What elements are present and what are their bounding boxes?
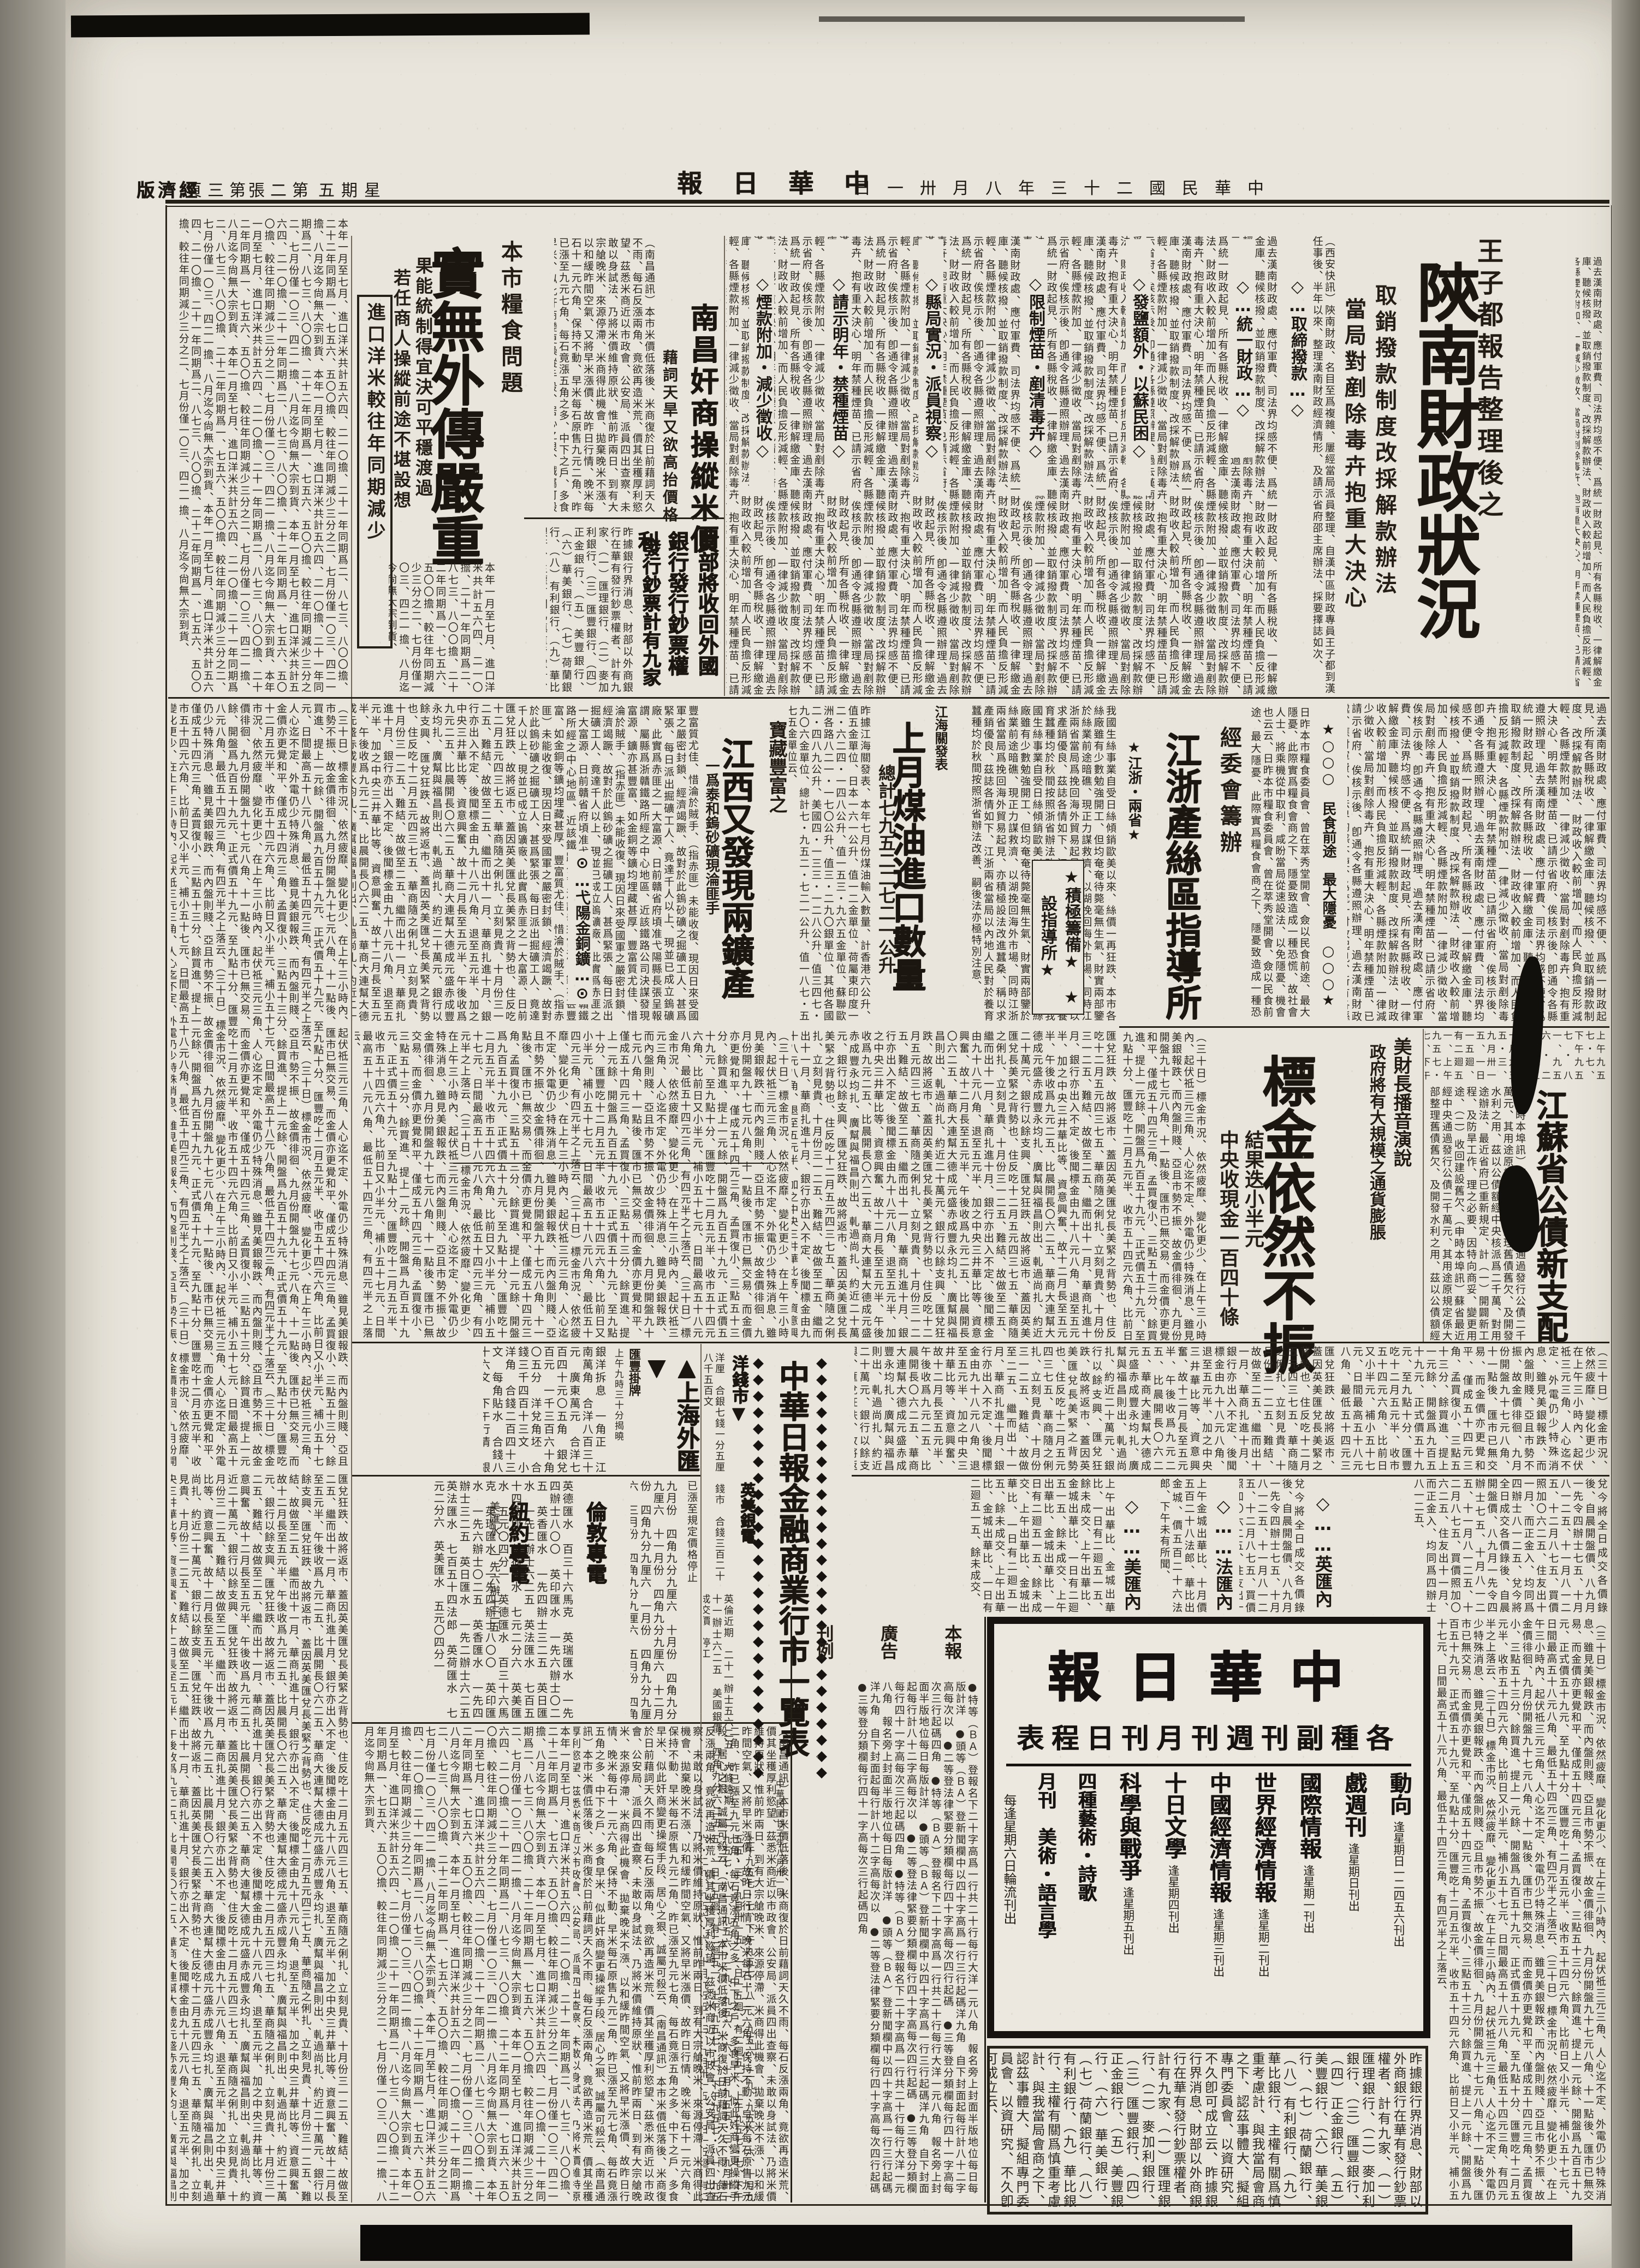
shanghai-fx-header: ▲上海外匯▼ <box>643 1354 703 1496</box>
ad-item-name: 十日文學 <box>1157 1772 1189 1859</box>
minfood-star-head: ★○○○ 民食前途 最大隱憂 ○○○★ <box>1314 707 1339 1023</box>
sterling-inner-intro: 兌今將全日成交各價錄後、自晨開盤價、八九月一先令四辦士七五、十月八一二五、十一月… <box>1340 1478 1608 1614</box>
shaanxi-subhead-diamond: ◇請示明年・禁種煙苗◇ <box>825 239 851 496</box>
shaanxi-subhead-diamond: ◇…統一財政…◇ <box>1229 239 1255 457</box>
left-strip-mid: （三十日）標金市況、依然疲靡、變化更少、在上午三小時內、起伏祗三元三角、人心迄不… <box>171 703 348 1467</box>
table-rule <box>852 1475 1609 1477</box>
header-sheet: 張二第 <box>248 177 314 201</box>
usd-inner-body: 上午出華比、金城出華比、一日有二廻五一五、餘未成交、上午出華比、金城出華比、一日… <box>854 1478 1115 1614</box>
ad-rates-label: 廣告 <box>876 1624 901 1674</box>
header-section-label: 版濟經 <box>136 176 200 202</box>
table-rule <box>352 1475 700 1477</box>
scanner-bar-bottom <box>360 2225 1572 2261</box>
mines-headline: 江西又發現兩鑛產 <box>722 737 759 1032</box>
shanghai-fx-table: 銀洋拆息 一角正 江南萬角 合洋八百三十元 廣東萬元 合洋七百四十元〇五角 銀兌… <box>483 1346 606 1474</box>
ad-item-kexuezhanzheng: 科學與戰爭逢星期五刊出 <box>1113 1772 1144 2028</box>
shaanxi-subhead-diamond: ◇發鹽額外・以蘇民困◇ <box>1126 239 1151 496</box>
silk-kicker: 經委會籌辦 <box>1213 726 1245 879</box>
scanner-line-top <box>819 16 1245 22</box>
silver-dollar-market-rows: 洋厘 合銀七錢一分五厘 錢市 合錢三百二十八千五百文 <box>703 1353 725 1582</box>
ad-item-guoji: 國際情報逢星期一刊出 <box>1293 1772 1324 2028</box>
sterling-inner-header: ◇……英匯內盤……◇ <box>1310 1485 1335 1616</box>
ad-item-dongxiang: 動向逢星期日一二四五六刊出 <box>1383 1772 1415 2028</box>
nanchang-deck: 藉詞天旱又欲高抬價格 <box>658 349 680 535</box>
ad-item-schedule: 逢星期一刊出 <box>1300 1865 1317 1933</box>
shaanxi-lead: （西安快訊）陝南財政、名目至爲複雜、屢經當局派員整理、自漢中區財政專員王子都到漢… <box>1311 236 1335 694</box>
gold-kicker-2: 政府將有大規模之通貨膨脹 <box>1364 1044 1388 1273</box>
ad-item-name: 中國經濟情報 <box>1203 1772 1234 1903</box>
ad-item-schedule: 逢星期二刊出 <box>1255 1908 1271 1977</box>
franc-inner-body: 上午金城出華比、十月價五百二十八法郎、華比出金城、價五百二十六法郎、下午未有所聞… <box>1148 1478 1207 1614</box>
ad-rates-block: 本報 廣告 刊例 ●特等（ＢＡ）登報名下二十字高爲一行共二十行每行大洋一元八角 … <box>791 1617 986 2202</box>
region-d-upper-right-text: （三十日）標金市況、依然疲靡、變化更少、在上午三小時內、起伏祗三元三角、人心迄不… <box>1340 1346 1608 1472</box>
ad-item-name: 科學與戰爭 <box>1113 1772 1144 1881</box>
silk-star-subhead: ★江浙・兩省★ <box>1120 710 1144 873</box>
newspaper-page: 日一卅月八年三十二國民華中 報日華中 五期星 張二第 頁三第 版濟經 王子都報告… <box>64 0 1640 2268</box>
ad-item-name: 世界經濟情報 <box>1247 1772 1279 1903</box>
newspaper-scan: 日一卅月八年三十二國民華中 報日華中 五期星 張二第 頁三第 版濟經 王子都報告… <box>0 0 1640 2268</box>
shaanxi-deck-1: 取銷撥款制度改採解款辦法 <box>1368 284 1400 688</box>
ad-item-schedule: 逢星期三刊出 <box>1210 1908 1227 1977</box>
ad-item-schedule: 逢星期四刊出 <box>1165 1865 1181 1933</box>
supplements-ad-box: 報日華中 表程日刊月刊週刊副種各 動向逢星期日一二四五六刊出 戲週刊逢星期日刊出… <box>987 1617 1430 2038</box>
kerosene-deck: 總計七九五二二七二一公升 <box>874 764 899 1026</box>
usd-inner-header: ◇……美匯內盤……◇ <box>1119 1487 1144 1618</box>
ad-rates-label: 刊例 <box>812 1624 837 1674</box>
newyork-cable-header: 紐約專電 <box>502 1501 532 1627</box>
food-boxed-label: 進口洋米較往年同期減少 <box>357 295 393 648</box>
food-headline: 實無外傳嚴重 <box>434 246 491 595</box>
band-rule-3 <box>352 1342 1609 1343</box>
ad-item-yishushige: 四種藝術・詩歌 <box>1072 1772 1099 2028</box>
shaanxi-subhead-diamond: ◇…取締撥款…◇ <box>1284 239 1309 457</box>
ad-rates-body: ●特等（ＢＡ）登報名下二十字高爲一行共二十行每行大洋一元八角 報名旁上封面半版地… <box>798 1681 978 2194</box>
shaanxi-subhead-diamond: ◇限制煙苗・剷清毒卉◇ <box>1022 239 1047 496</box>
ad-item-xizhoukan: 戲週刊逢星期日刊出 <box>1338 1772 1369 2028</box>
shanghai-fx-time: 上午九時三十分揭曉 <box>608 1348 623 1512</box>
mines-circle-subhead: ⊙…弋陽金銅鑛…⊙ <box>568 852 593 1004</box>
ad-subtitle: 表程日刊月刊週刊副種各 <box>994 1717 1423 1756</box>
newyork-cable-row: 美匯水 一先六辦士二五 <box>479 1501 500 1681</box>
scanner-bar-top <box>71 13 590 38</box>
kerosene-body: 昨據江海關發表、本年七月份煤油輸入數量、計香港六公升、值五金單位、日本一六一公升… <box>789 705 871 1022</box>
ad-item-name: 戲週刊 <box>1338 1772 1369 1837</box>
minor-rule <box>453 1163 781 1164</box>
shaanxi-deck-2: 當局對剷除毒卉抱重大決心 <box>1338 297 1369 701</box>
left-edge-shadow <box>0 0 66 2268</box>
gold-body: （三十日）標金市況、依然疲靡、變化更少、在上午三小時內、起伏祗三元三角、人心迄不… <box>1122 1032 1207 1342</box>
silver-months-table: 九月份 四角九分九厘六 十月份 四角九分九厘六 十一月份 四角九分九厘六 十二月… <box>631 1480 677 1721</box>
shaanxi-headline: 陝南財政狀況 <box>1397 259 1488 696</box>
ad-brand-title: 報日華中 <box>994 1634 1423 1711</box>
mines-kicker: 寶藏豐富之 <box>763 721 790 846</box>
kerosene-headline: 上月煤油進口數量 <box>896 721 930 1026</box>
header-date: 日一卅月八年三十二國民華中 <box>854 175 1280 199</box>
left-strip-bottom: 匯兌狂跌、故將返市、蓋因英美匯兌長美緊之背勢也、住反吃十二月五元四三七五、華商隨… <box>171 1474 348 2202</box>
region-e-left-text-b: 本年一月至七月、進口洋米共計五六四、二一〇擔、二十一年同期爲二、八七三、八〇〇擔… <box>355 1726 571 2202</box>
ad-item-meishuyuyanxue: 月刊 美術・語言學 <box>1032 1772 1059 2028</box>
region-e-right-text: （三十日）標金市況、依然疲靡、變化更少、在上午三小時內、起伏祗三元三角、人心迄不… <box>1436 1618 1606 2201</box>
column-rule <box>1423 1029 1424 1342</box>
franc-inner-header: ◇……法匯內盤……◇ <box>1211 1487 1236 1618</box>
region-c-mid-text: 匯兌狂跌、故將返市、蓋因英美匯兌長美緊之背勢也、住反吃十二月五元四三七五、華商隨… <box>792 1031 1116 1339</box>
ad-rates-labels: 本報 廣告 刊例 <box>792 1617 984 1674</box>
ad-rates-label: 本報 <box>940 1624 965 1674</box>
notice-box: 昨據銀行界消息、財部以外商銀行在華有發行鈔票權者、計有九家、（一）匯理銀行、（二… <box>987 2046 1428 2215</box>
minfood-body: 日昨本市糧食委員會、曾在萃秀堂開會、僉以民食前途、最大隱憂、此際實爲糧食會商之下… <box>1250 707 1310 1018</box>
gold-kicker-1: 美財長播音演說 <box>1388 1037 1415 1195</box>
left-strip-top: 本年一月至七月、進口洋米共計五六四、二一〇擔、二十一年同期爲二、八七三、八〇〇擔… <box>171 218 348 693</box>
ad-item-name: 四種藝術・詩歌 <box>1072 1772 1099 1902</box>
mines-body: 豐富質尤佳、惜淪於賊手、（指赤匪）未能收復、現因日來受國軍之嚴密封鎖、經濟竭蹶、… <box>519 705 699 1022</box>
food-deck-1: 果能統制得宜決可平穩渡過 <box>411 257 436 540</box>
ad-item-shiriwenxue: 十日文學逢星期四刊出 <box>1157 1772 1189 2028</box>
region-c-left-text: （三十日）標金市況、依然疲靡、變化更少、在上午三小時內、起伏祗三元三角、人心迄不… <box>355 1031 789 1339</box>
region-b-right-text: 過去漢南財政處、應付軍費、司法界均感不便、爲統一財政起見、所有各縣稅收、一律解繳… <box>1347 703 1607 1022</box>
column-rule-left <box>351 236 352 2202</box>
masthead-title: 報日華中 <box>677 164 900 200</box>
london-cable-header: 倫敦專電 <box>580 1501 610 1627</box>
gold-deck-2: 中央收現金一百四十條 <box>1213 1130 1241 1365</box>
header-weekday: 五期星 <box>318 177 387 201</box>
ad-item-schedule: 逢星期日一二四五六刊出 <box>1391 1821 1407 1947</box>
ad-item-shijiejingji: 世界經濟情報逢星期二刊出 <box>1247 1772 1279 2028</box>
shanghai-fx-subheader: 匯豐掛牌 <box>625 1348 642 1419</box>
london-cable-table: 英德匯水 百三十六馬克 英瑞匯水 一先四辦士八〇〇 英印匯水 一先六辦士〇二五 … <box>355 1480 573 1719</box>
nanchang-headline: 南昌奸商操縱米價 <box>681 303 722 565</box>
banknotes-headline: 財部將收回外國銀行發行鈔票權利 <box>675 531 722 694</box>
story-divider-rule <box>524 517 724 519</box>
banknotes-deck: 發行鈔票計有九家 <box>637 538 663 696</box>
banknotes-body: 昨據銀行界消息、財部以外商銀行在華有發行鈔票權者、計有九家、（一）匯理銀行、（二… <box>546 527 633 693</box>
ad-item-schedule: 逢星期五刊出 <box>1120 1886 1137 1955</box>
silk-headline: 江浙產絲區指導所 <box>1155 731 1207 1048</box>
silver-dollar-market-header: 洋錢市▼ <box>726 1355 750 1464</box>
food-kicker: 本市糧食問題 <box>494 240 526 420</box>
ad-rotation-note: 每逢星期六日輪流刊出 <box>1000 1772 1019 2028</box>
ad-item-name: 月刊 美術・語言學 <box>1032 1772 1059 1939</box>
band-rule-1 <box>168 697 1609 699</box>
kerosene-kicker: 江海關發表 <box>931 705 950 814</box>
banner-diamond-column-right: ◆◆◆◆◆◆◆◆◆◆◆◆◆◆◆◆◆◆◆◆◆◆◆◆◆◆ <box>751 1355 765 1770</box>
header-rule-thick <box>165 200 1609 204</box>
ad-item-name: 國際情報 <box>1293 1772 1324 1859</box>
sterling-inner-body: 兌今將全日成交各價錄後、自晨開盤價、八九月一先令四辦士七五、十月八一二五、十一月… <box>1239 1478 1305 1614</box>
ad-schedule-list: 動向逢星期日一二四五六刊出 戲週刊逢星期日刊出 國際情報逢星期一刊出 世界經濟情… <box>994 1766 1423 2028</box>
ad-item-name: 動向 <box>1383 1772 1415 1815</box>
mines-deck: 一爲泰和鎢砂礦現淪匪手 <box>702 759 722 1043</box>
region-b-left-text: 匯兌狂跌、故將返市、蓋因英美匯兌長美緊之背勢也、住反吃十二月五元四三七五、華商隨… <box>352 703 516 1022</box>
region-d-upper-mid-text: 匯兌狂跌、故將返市、蓋因英美匯兌長美緊之背勢也、住反吃十二月五元四三七五、華商隨… <box>854 1346 1335 1472</box>
ad-note-text: 每逢星期六日輪流刊出 <box>1000 1794 1019 1925</box>
silver-note: 已漲至規定價格停止 <box>681 1480 698 1710</box>
shaanxi-right-edge-column: 過去漢南財政處、應付軍費、司法界均感不便、爲統一財政起見、所有各縣稅收、一律解繳… <box>1576 257 1602 688</box>
food-body-lower: 本年一月至七月、進口洋米共計五六四、二一〇擔、二十一年同期爲二、八七三、八〇〇擔… <box>389 562 495 693</box>
ad-item-schedule: 逢星期日刊出 <box>1345 1843 1362 1912</box>
ad-item-zhongguojingji: 中國經濟情報逢星期三刊出 <box>1203 1772 1234 2028</box>
silk-starbox-subhead: ★積極籌備★ ★設指導所★ <box>1032 860 1084 1015</box>
nanchang-body: （南昌通訊）本市米價低落後、米商復於日前藉詞天久不雨、每石反漲兩角、竟欲再造米荒… <box>554 237 655 513</box>
shaanxi-subhead-diamond: ◇縣局實況・派員視察◇ <box>918 239 943 496</box>
region-e-left-text-a: （南昌通訊）本市米價低落後、米商復於日前藉詞天久不雨、每石反漲兩角、竟欲再造米荒… <box>573 1726 789 2202</box>
shaanxi-body: 過去漢南財政處、應付軍費、司法界均感不便、爲統一財政起見、所有各縣稅收、一律解繳… <box>726 236 1277 696</box>
right-edge-shadow <box>1612 0 1640 2268</box>
gold-deck-1: 結果迭小半元 <box>1238 1130 1267 1272</box>
shaanxi-subhead-diamond: ◇煙款附加・減少徵收◇ <box>749 239 774 496</box>
column-rule <box>724 236 725 696</box>
